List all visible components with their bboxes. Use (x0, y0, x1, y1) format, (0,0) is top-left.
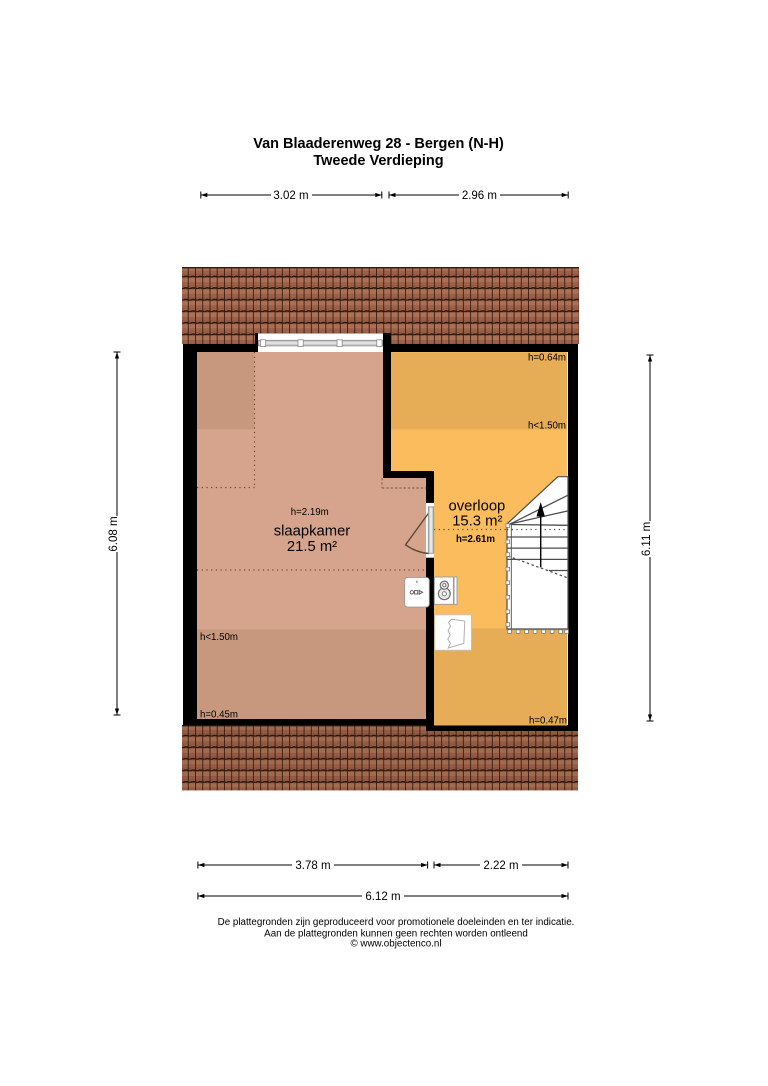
svg-text:h=2.61m: h=2.61m (456, 534, 495, 545)
svg-text:h=0.64m: h=0.64m (528, 353, 566, 364)
svg-text:overloop: overloop (449, 499, 506, 515)
svg-text:15.3 m²: 15.3 m² (452, 514, 502, 530)
svg-text:h=0.45m: h=0.45m (200, 710, 238, 721)
svg-text:6.12 m: 6.12 m (365, 891, 400, 903)
svg-text:h<1.50m: h<1.50m (528, 421, 566, 432)
svg-text:h<1.50m: h<1.50m (200, 632, 238, 643)
svg-text:2.96 m: 2.96 m (462, 190, 497, 202)
svg-text:Tweede Verdieping: Tweede Verdieping (313, 153, 443, 169)
svg-text:3.78 m: 3.78 m (295, 860, 330, 872)
svg-text:6.11 m: 6.11 m (641, 522, 653, 556)
svg-text:h=2.19m: h=2.19m (291, 507, 329, 518)
svg-text:3.02 m: 3.02 m (273, 190, 308, 202)
svg-text:h=0.47m: h=0.47m (529, 715, 567, 726)
svg-text:Van Blaaderenweg 28 - Bergen (: Van Blaaderenweg 28 - Bergen (N-H) (253, 136, 504, 152)
svg-text:2.22 m: 2.22 m (483, 860, 518, 872)
svg-text:6.08 m: 6.08 m (108, 516, 120, 551)
svg-text:21.5 m²: 21.5 m² (287, 539, 337, 555)
svg-text:© www.objectenco.nl: © www.objectenco.nl (350, 939, 441, 950)
svg-text:De plattegronden zijn geproduc: De plattegronden zijn geproduceerd voor … (218, 917, 575, 928)
svg-text:slaapkamer: slaapkamer (274, 524, 351, 540)
